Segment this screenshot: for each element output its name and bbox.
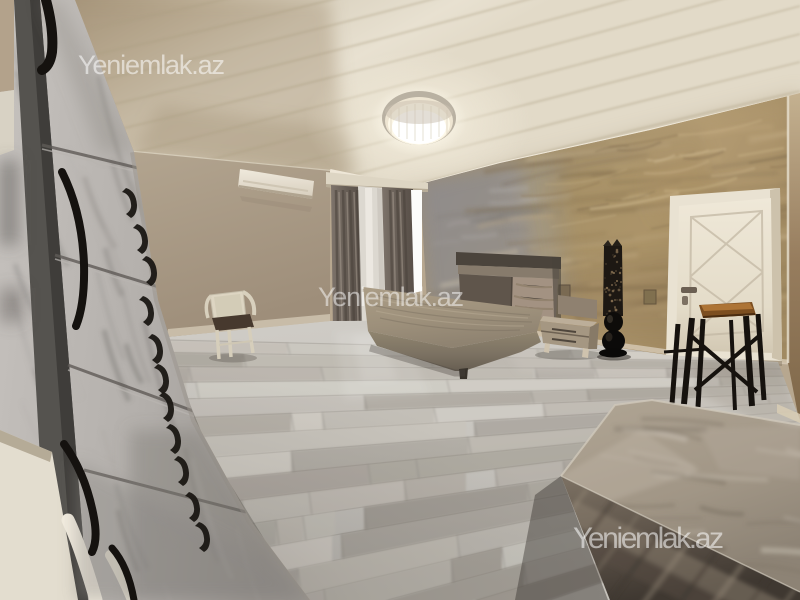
svg-text:Yeniemlak.az: Yeniemlak.az (318, 282, 464, 312)
svg-text:Yeniemlak.az: Yeniemlak.az (78, 50, 225, 80)
svg-text:Yeniemlak.az: Yeniemlak.az (573, 522, 724, 555)
